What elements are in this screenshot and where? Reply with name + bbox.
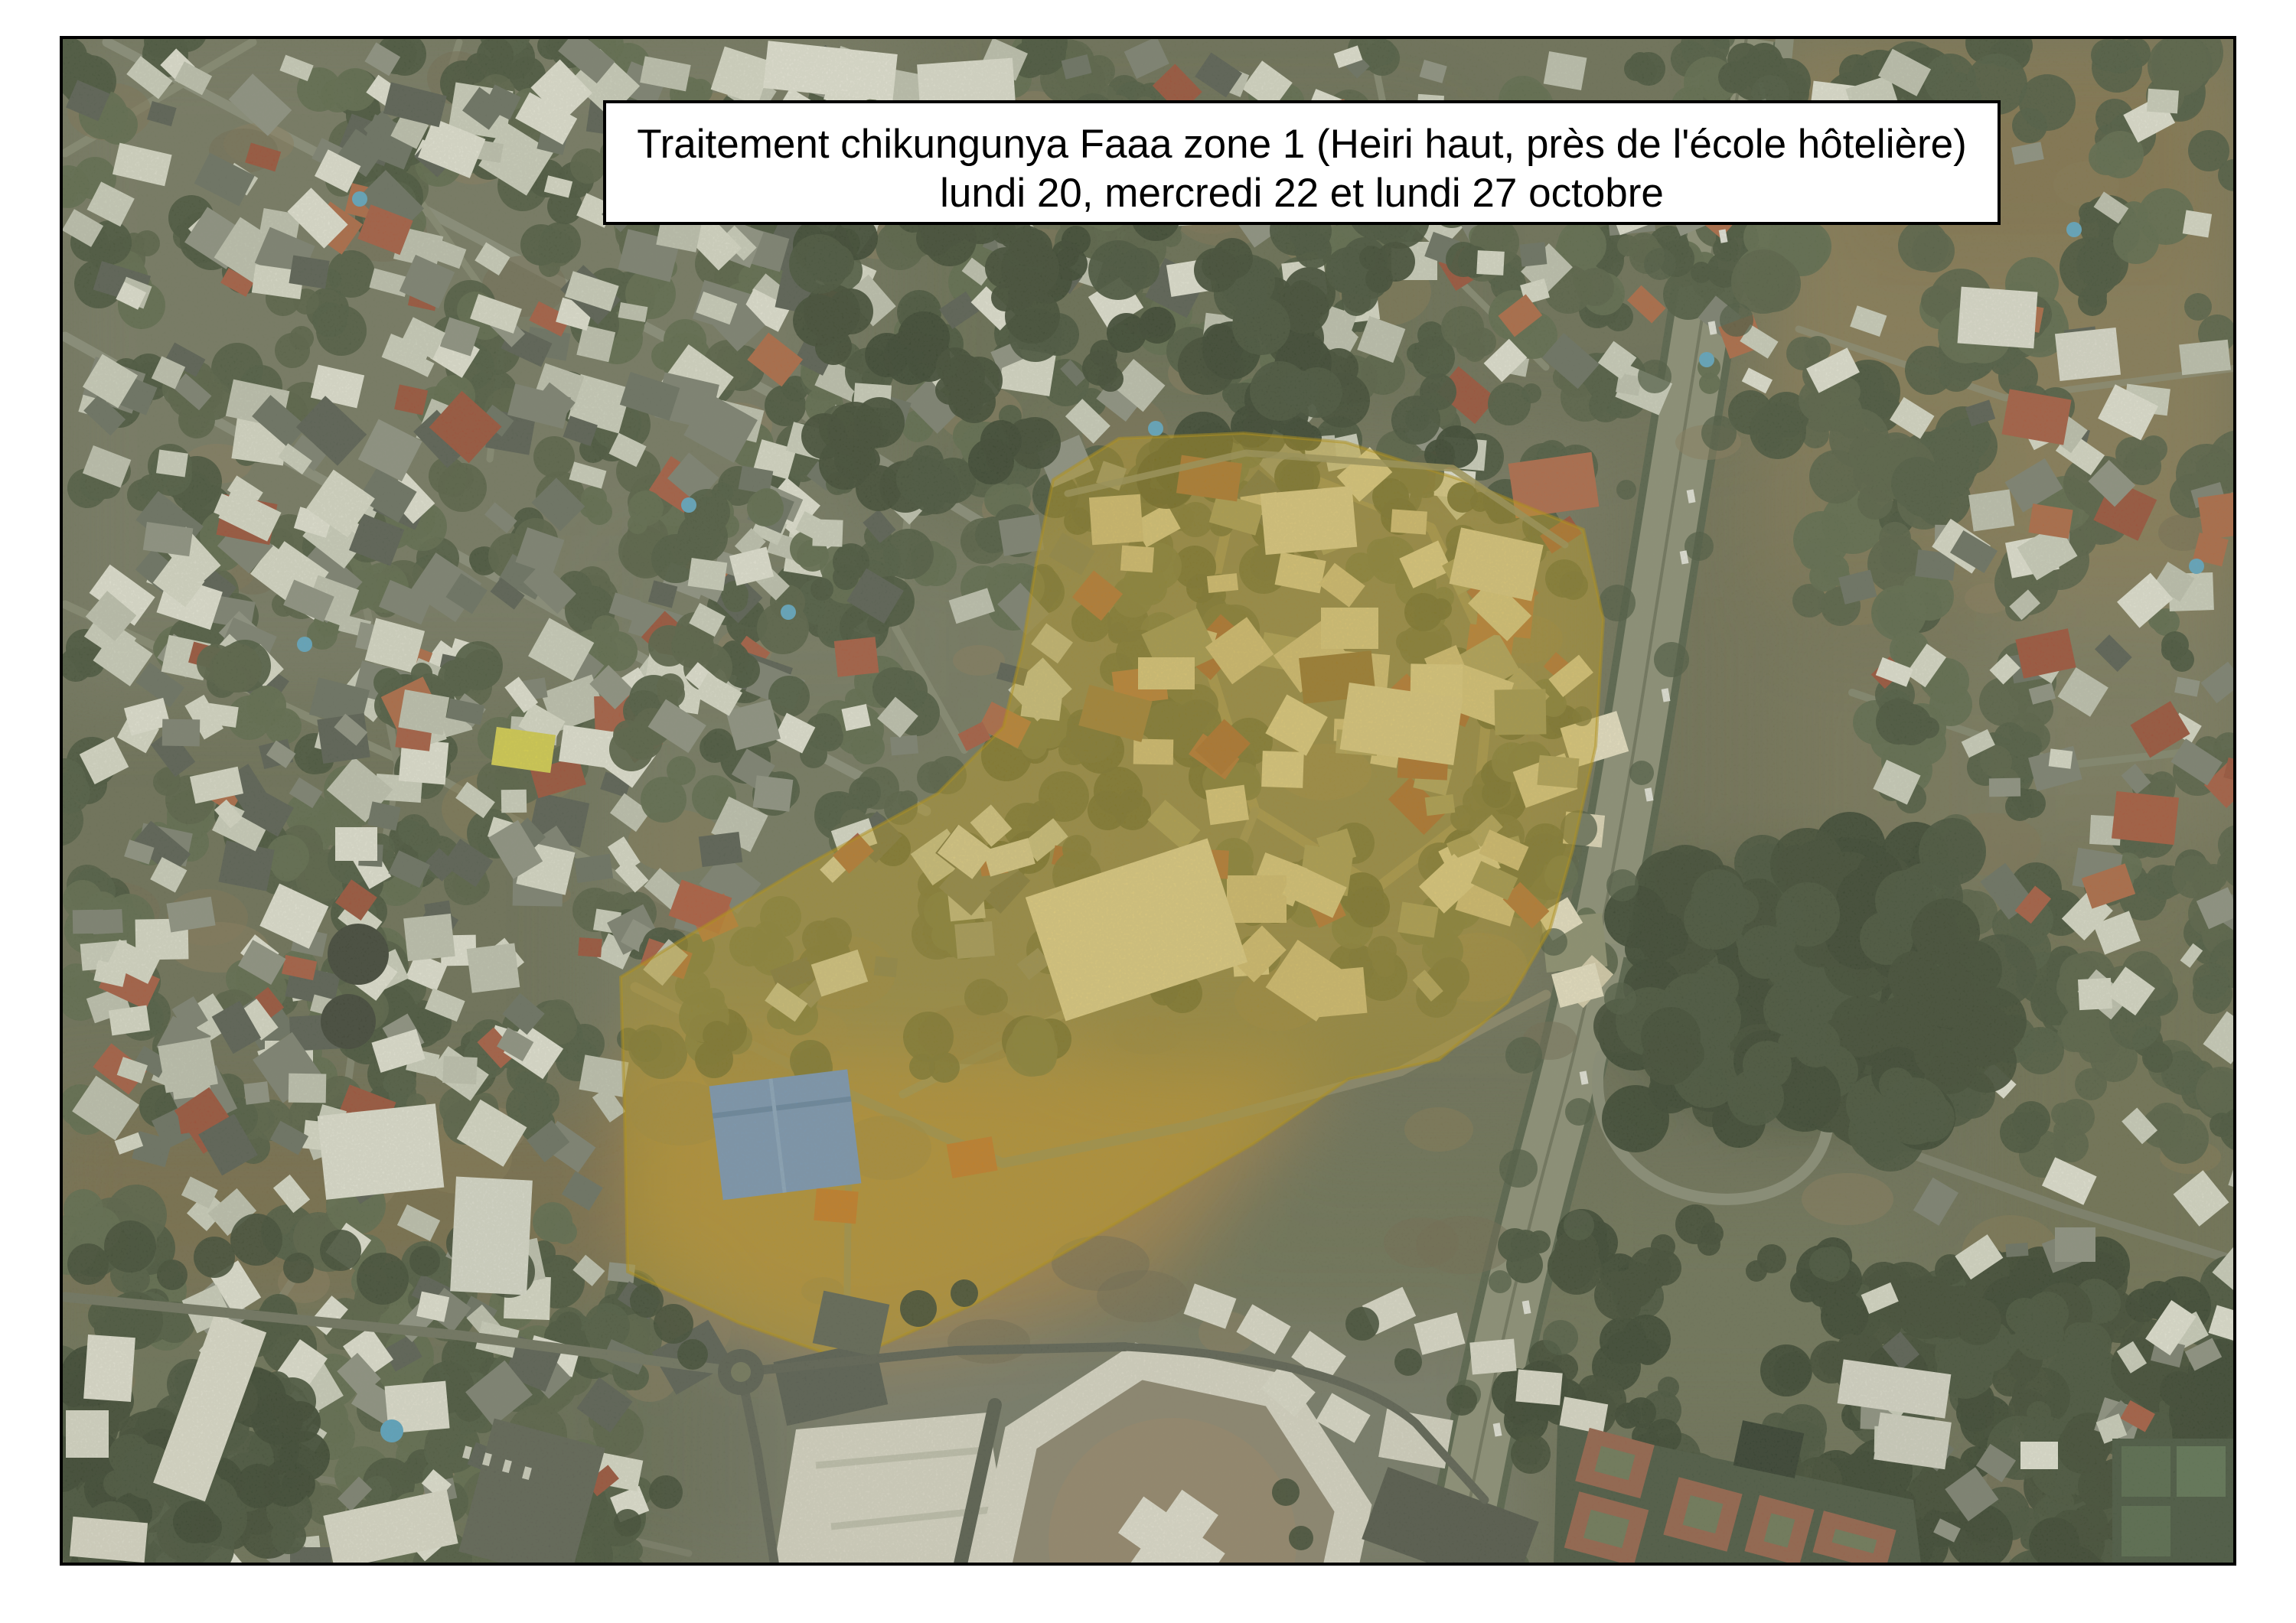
svg-text:lundi 20, mercredi 22 et lundi: lundi 20, mercredi 22 et lundi 27 octobr… — [940, 171, 1664, 216]
svg-text:Traitement chikungunya Faaa zo: Traitement chikungunya Faaa zone 1 (Heir… — [637, 122, 1966, 167]
